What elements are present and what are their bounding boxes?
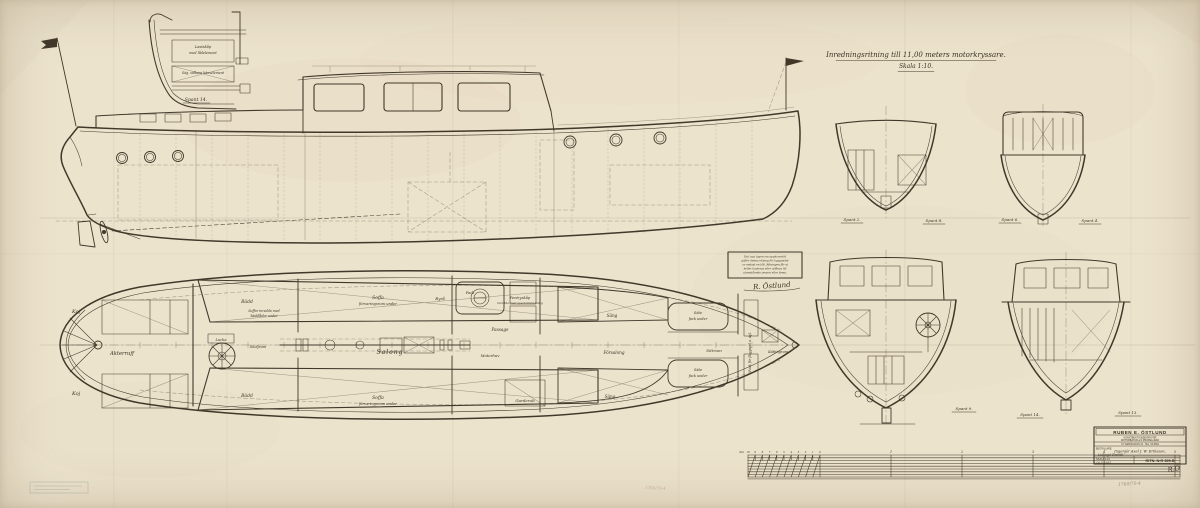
plan-note-soffa-1: Soffor inredda med bbox=[248, 309, 279, 313]
meter-tick: 1 bbox=[890, 450, 892, 454]
dm-tick: 7 bbox=[769, 450, 771, 454]
plan-label-badd-bottom: Bädd bbox=[240, 393, 253, 399]
plan-label-sate-top-1: Säte bbox=[694, 311, 702, 315]
title-block: RUBEN E. ÖSTLUND KONSTRUKTIONSBYRÅ FÖR M… bbox=[1094, 427, 1186, 474]
company-address: S:T ERIKSGATAN 31 · TEL. VA 6691 bbox=[1121, 443, 1160, 446]
title-scale: Skala 1:10. bbox=[899, 63, 933, 70]
pencil-note-right: 1760/70-4 bbox=[1118, 480, 1142, 488]
section-label-spant13: Spant 13. bbox=[1118, 410, 1138, 415]
plan-label-sang-top: Säng bbox=[607, 313, 618, 318]
section-label-spant14: Spant 14. bbox=[1020, 412, 1040, 417]
plan-label-motorhuv: Motorhuv bbox=[480, 353, 501, 358]
section-spant-2-8 bbox=[836, 106, 936, 218]
dm-tick: 10 bbox=[746, 450, 750, 454]
blueprint-sheet: Lastskåp med lådelement Säg. sidbara bän… bbox=[0, 0, 1200, 508]
blueprint-drawing: Lastskåp med lådelement Säg. sidbara bän… bbox=[0, 0, 1200, 508]
plan-label-pentryskap-2: inredda med specialinredning bbox=[497, 301, 543, 305]
dm-tick: 6 bbox=[776, 450, 778, 454]
meter-tick: 4 bbox=[1102, 450, 1105, 454]
detail-note-3: Säg. sidbara bänselement bbox=[182, 71, 225, 75]
plan-label-soffa-bottom-2: förvaringsrum under bbox=[358, 402, 397, 406]
plan-label-soffa-top-2: förvaringsrum under bbox=[358, 302, 397, 306]
dm-tick: 4 bbox=[790, 450, 792, 454]
section-label-spant6: Spant 6. bbox=[1002, 217, 1019, 222]
detail-note-1: Lastskåp bbox=[194, 44, 212, 49]
dm-tick: 5 bbox=[783, 450, 785, 454]
approval-initials: R.Ö bbox=[1166, 463, 1181, 474]
rudder bbox=[78, 221, 95, 247]
dm-tick: 1 bbox=[812, 450, 814, 454]
plan-label-akterruff: Akterruff bbox=[109, 351, 135, 357]
misc-marks: 1760/70-4 1760/70-4 bbox=[30, 480, 1141, 493]
plan-label-soffa-top-1: Soffa bbox=[372, 295, 384, 301]
plan-label-byra: Byrå bbox=[434, 296, 445, 301]
plan-label-sang-bottom: Säng bbox=[605, 394, 616, 399]
plan-label-garderob: Garderob bbox=[515, 398, 535, 403]
plan-label-sate-top-2: fack under bbox=[688, 317, 708, 321]
pencil-note-center: 1760/70-4 bbox=[645, 485, 666, 491]
stern-flagstaff bbox=[41, 38, 76, 126]
meter-tick: 3 bbox=[1032, 450, 1034, 454]
meter-tick: 5 bbox=[1174, 450, 1176, 454]
plan-note-soffa-2: bäddlådor under bbox=[251, 313, 278, 318]
meter-tick: 2 bbox=[960, 450, 963, 454]
company-byline-2: MOTORBÅTAR och PROPELLRAR bbox=[1121, 439, 1159, 442]
propeller-icon bbox=[88, 214, 400, 243]
plan-label-fack-flagg: Fack för flaggspel o. dyl. bbox=[748, 332, 752, 373]
plan-label-skoljrum: Sköljrum bbox=[250, 345, 267, 349]
section-label-spant4: Spant 4. bbox=[1082, 218, 1099, 223]
section-label-spant8: Spant 8. bbox=[926, 218, 943, 223]
plan-label-fack: Fack bbox=[465, 291, 475, 295]
plan-label-sate-bottom-2: fack under bbox=[688, 374, 708, 378]
plan-label-passage: Passage bbox=[490, 327, 509, 332]
company-name: RUBEN E. ÖSTLUND bbox=[1113, 429, 1167, 435]
section-label-spant9: Spant 9. bbox=[956, 406, 973, 411]
dm-tick: 3 bbox=[798, 450, 800, 454]
dm-tick: 2 bbox=[804, 450, 807, 454]
plan-label-lucka: Lucka bbox=[214, 338, 226, 342]
plan-label-sittrum: Sittrum bbox=[706, 348, 722, 353]
scale-unit-label: dm bbox=[739, 450, 744, 454]
plan-label-forsalong: Försalong bbox=[602, 350, 624, 355]
plan-label-sate-bottom-1: Säte bbox=[694, 368, 702, 372]
dm-tick: 0 bbox=[819, 450, 821, 454]
section-label-spant2: Spant 2. bbox=[844, 217, 861, 222]
note-line-5: utomstående person eller firma. bbox=[743, 270, 787, 275]
title-text: Inredningsritning till 11,00 meters moto… bbox=[825, 51, 1006, 59]
plan-label-koj-bottom: Koj bbox=[71, 391, 81, 397]
dm-tick: 8 bbox=[762, 450, 764, 454]
plan-label-soffa-bottom-1: Soffa bbox=[372, 395, 384, 401]
detail-caption: Spant 14. bbox=[185, 97, 208, 103]
dm-tick: 9 bbox=[754, 450, 756, 454]
plan-label-koj-top: Koj bbox=[71, 309, 81, 315]
date-cell: 14.5.1932 bbox=[1096, 460, 1111, 464]
plan-label-badd-top: Bädd bbox=[240, 299, 253, 305]
shaft-hardware bbox=[280, 337, 470, 353]
plan-label-kattingrum: Kättingrum bbox=[767, 350, 788, 354]
corner-stamp bbox=[30, 482, 88, 493]
detail-note-2: med lådelement bbox=[189, 50, 217, 55]
plan-label-pentryskap-1: Pentryskåp bbox=[509, 295, 531, 300]
plan-label-salong: Salong bbox=[377, 349, 404, 356]
stern-fan bbox=[62, 310, 102, 380]
